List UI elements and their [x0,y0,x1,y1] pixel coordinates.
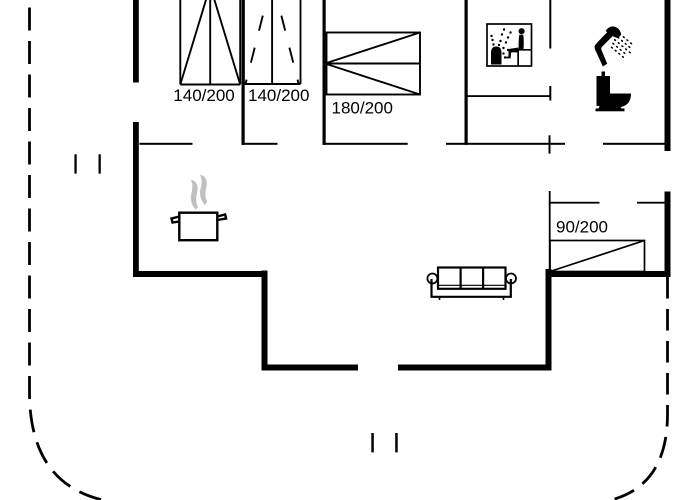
svg-text:140/200: 140/200 [173,86,234,105]
svg-text:90/200: 90/200 [556,218,608,237]
svg-text:180/200: 180/200 [332,99,393,118]
svg-text:140/200: 140/200 [248,86,309,105]
